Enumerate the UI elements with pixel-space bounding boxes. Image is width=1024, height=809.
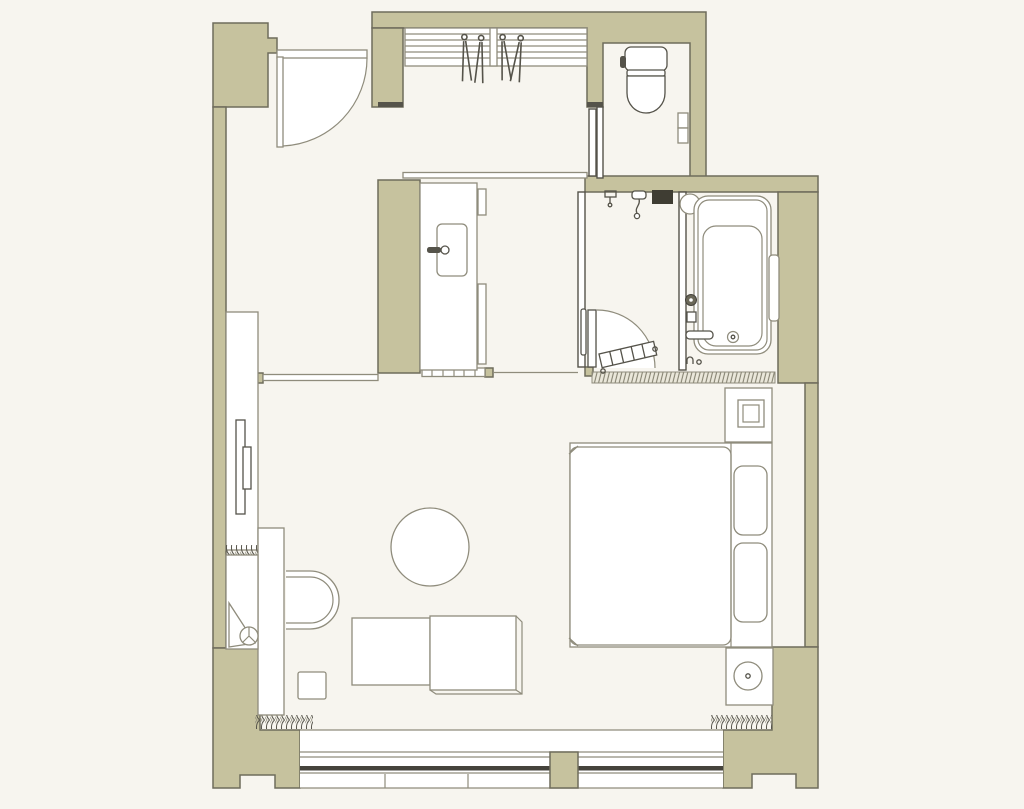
post-vanity-track — [485, 368, 493, 377]
entrance-door-leaf — [277, 57, 283, 147]
shower-door-handle — [581, 309, 586, 355]
wall-left — [213, 107, 226, 648]
toilet-control-lower — [678, 128, 688, 143]
nightstand-top — [725, 388, 772, 442]
closet-floor-track — [403, 173, 587, 179]
accessory-stand — [226, 555, 258, 649]
tv-mount — [243, 447, 251, 489]
wall-bedroom-right — [805, 383, 818, 647]
vanity-area — [420, 183, 486, 370]
window-glass — [300, 766, 723, 771]
faucet-icon — [427, 247, 441, 253]
toilet-seat-hinge — [627, 70, 665, 76]
pillow-lower — [734, 543, 767, 622]
ottoman-bench — [352, 616, 522, 694]
closet-right-wall — [597, 107, 603, 178]
curtain-left — [255, 715, 313, 729]
vanity-mirror-upper — [478, 189, 486, 215]
round-lamp-icon — [734, 662, 762, 690]
round-table — [391, 508, 469, 586]
floorplan-canvas — [0, 0, 1024, 809]
desk — [258, 528, 284, 715]
wall-bathroom-right — [778, 192, 818, 383]
floorplan-drawing — [0, 0, 1024, 809]
stool — [298, 672, 326, 699]
pillow-upper — [734, 466, 767, 535]
curtain-right — [711, 715, 772, 729]
closet-rod-support — [490, 28, 497, 66]
toilet-tank — [625, 47, 667, 71]
bed-duvet — [570, 447, 731, 645]
nightstand-bottom — [726, 648, 773, 705]
shower-tub-partition — [679, 192, 686, 370]
sliding-partition — [263, 375, 378, 381]
wall-bathroom-top-band — [585, 176, 818, 192]
wall-cap-left — [378, 102, 403, 107]
towel-rail — [769, 255, 779, 321]
window-sill-band — [300, 730, 723, 788]
bathtub-outer — [694, 196, 771, 354]
square-lamp-icon — [738, 400, 764, 427]
toilet-bowl — [627, 76, 665, 113]
bath-mixer-knob-center — [689, 298, 693, 302]
bathtub-room — [686, 196, 780, 364]
bath-grab-bar — [686, 331, 713, 339]
entrance-threshold — [277, 50, 367, 58]
curtain-desk-side — [226, 545, 260, 556]
bath-control-box — [687, 312, 696, 322]
vanity-mirror-lower — [478, 284, 486, 364]
wall-entrance-block — [213, 23, 277, 107]
wall-vanity-left — [378, 180, 420, 373]
wall-cap-right — [587, 102, 603, 107]
shower-door-leaf — [588, 310, 596, 367]
desk-chair — [286, 571, 339, 629]
bathroom-threshold-hatch — [592, 372, 775, 383]
toilet-flush-handle — [620, 56, 626, 68]
window-mullion — [550, 752, 578, 788]
shower-shelf — [652, 190, 673, 204]
wall-door-right-block — [372, 28, 403, 107]
double-bed — [569, 443, 772, 647]
toilet-control-upper — [678, 113, 688, 128]
toilet-door-leaf — [589, 109, 596, 176]
